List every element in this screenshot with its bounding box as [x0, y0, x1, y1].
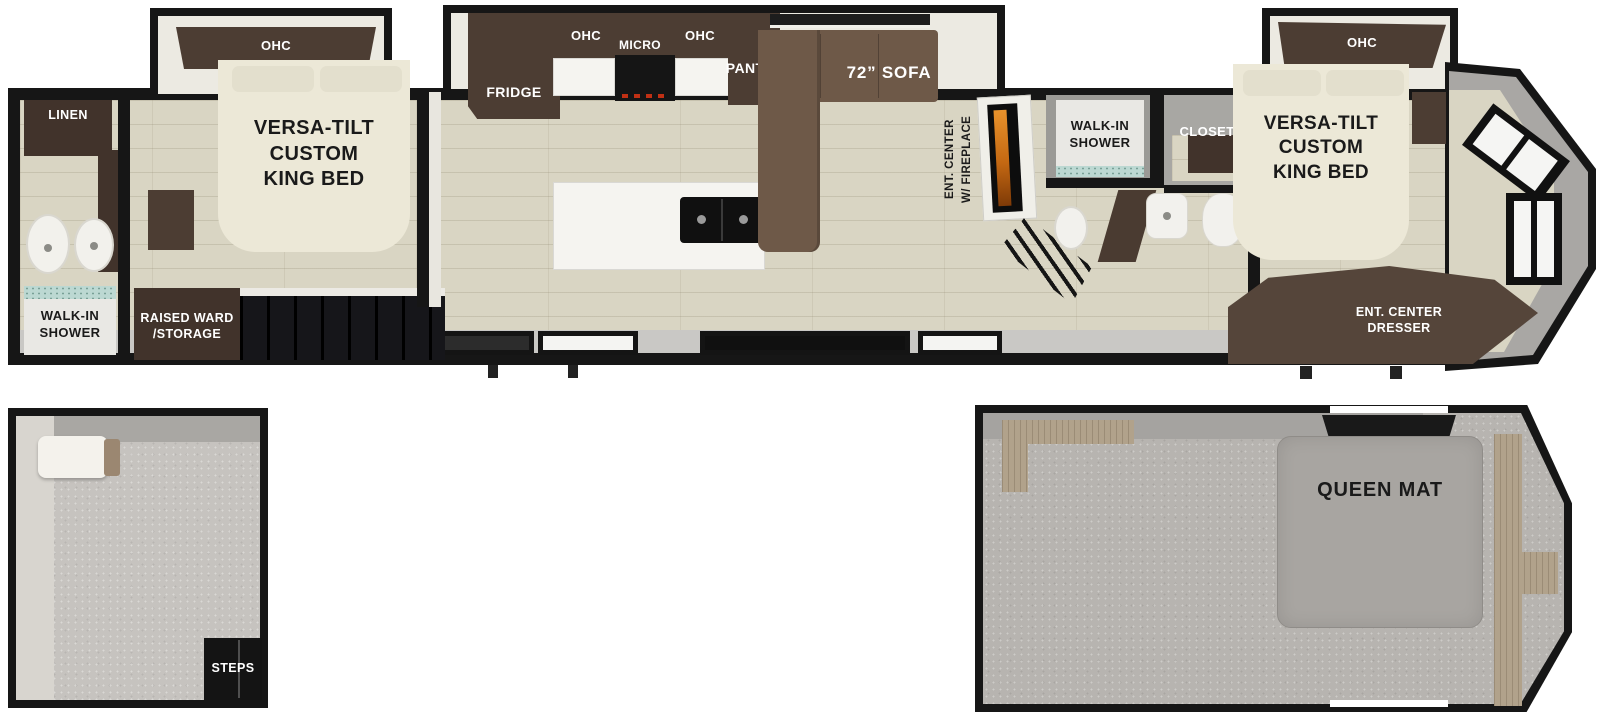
- rear-nightstand: [148, 190, 194, 250]
- rear-ohc-label: OHC: [176, 38, 376, 55]
- front-nightstand: [1412, 92, 1446, 144]
- raised-ward-label: RAISED WARD /STORAGE: [134, 310, 240, 342]
- loft-border-gap: [1330, 700, 1448, 707]
- loft-skylight: [1322, 415, 1456, 437]
- sink-drain: [739, 215, 748, 224]
- stabilizer-foot: [1300, 366, 1312, 379]
- wall-face: [429, 92, 441, 307]
- sink-divider: [721, 199, 723, 241]
- sink-drain: [44, 244, 52, 252]
- steps-edge: [240, 288, 445, 296]
- kitchen-counter: [553, 58, 615, 96]
- ent-center-fireplace-label: ENT. CENTER W/ FIREPLACE: [938, 98, 980, 220]
- dresser-label: ENT. CENTER DRESSER: [1314, 304, 1484, 336]
- rear-shower-label: WALK-IN SHOWER: [18, 308, 122, 341]
- bath-wall: [1150, 92, 1164, 188]
- shower-glass: [24, 286, 116, 299]
- steps-label: STEPS: [204, 660, 262, 676]
- second-door: [918, 331, 1002, 355]
- window-main: [700, 331, 910, 355]
- stove-burners: [622, 94, 668, 98]
- mid-shower-glass: [1056, 166, 1144, 177]
- rear-bed-label: VERSA-TILT CUSTOM KING BED: [218, 116, 410, 193]
- stabilizer-foot: [488, 365, 498, 378]
- toilet: [1054, 206, 1088, 250]
- sink-drain: [697, 215, 706, 224]
- loft-bench: [38, 436, 108, 478]
- floorplan-canvas: OHC OHC LINEN WALK-IN SHOWER VERSA-TILT …: [0, 0, 1600, 722]
- stabilizer-foot: [1390, 366, 1402, 379]
- sink-drain: [90, 242, 98, 250]
- closet-shelf: [1188, 135, 1238, 173]
- pillow: [320, 66, 402, 92]
- queen-mat-label: QUEEN MAT: [1277, 478, 1483, 504]
- front-window-lower: [1506, 193, 1562, 285]
- fridge-label: FRIDGE: [468, 84, 560, 102]
- front-ohc-label: OHC: [1278, 35, 1446, 52]
- entry-door: [538, 331, 638, 355]
- bath-wall: [1046, 178, 1152, 188]
- linen-label: LINEN: [24, 107, 112, 123]
- rear-bedroom-wall: [417, 92, 429, 307]
- nose-wood-bar: [1494, 552, 1558, 594]
- loft-bench-arm: [104, 439, 120, 476]
- fridge: [468, 13, 560, 119]
- mid-shower-label: WALK-IN SHOWER: [1046, 118, 1154, 151]
- loft-rail-vertical: [1002, 420, 1028, 492]
- sofa-window: [770, 14, 930, 28]
- stabilizer-foot: [568, 365, 578, 378]
- rear-bedroom-steps: [240, 296, 445, 360]
- pillow: [232, 66, 314, 92]
- pillow: [1326, 70, 1404, 96]
- ohc-right-label: OHC: [662, 28, 738, 45]
- pillow: [1243, 70, 1321, 96]
- loft-border-gap: [1330, 406, 1448, 413]
- sink-drain: [1163, 212, 1171, 220]
- queen-mat: [1277, 436, 1483, 628]
- rear-bath-wall: [118, 92, 130, 362]
- entry-steps-opening: [434, 331, 534, 355]
- sofa-label: 72” SOFA: [800, 62, 978, 84]
- front-bed-label: VERSA-TILT CUSTOM KING BED: [1233, 112, 1409, 185]
